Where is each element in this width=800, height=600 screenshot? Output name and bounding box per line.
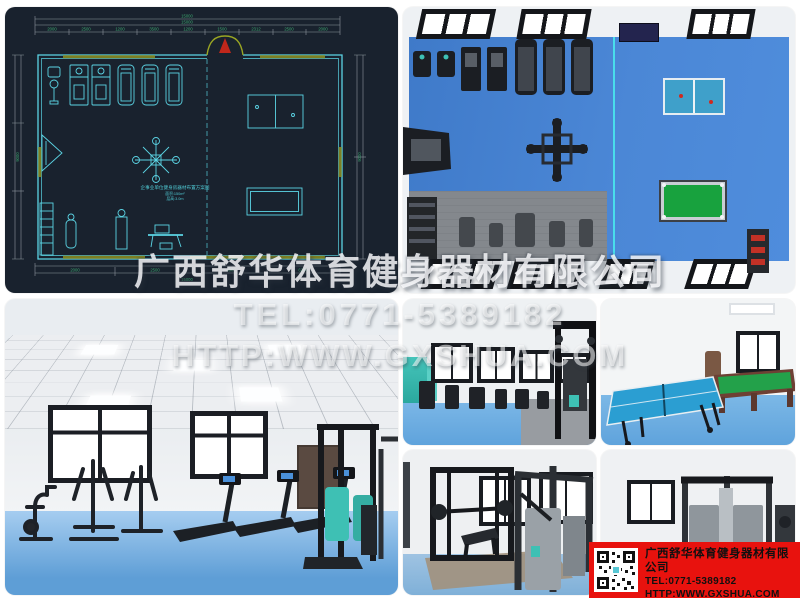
- svg-text:2500: 2500: [81, 27, 91, 32]
- equipment-silhouettes: [403, 7, 795, 293]
- ping-pong-table: [607, 377, 723, 445]
- svg-text:2000: 2000: [318, 27, 328, 32]
- svg-text:2000: 2000: [70, 268, 80, 273]
- svg-text:2000: 2000: [47, 27, 57, 32]
- billiard-table: [714, 369, 795, 413]
- tables: [601, 299, 795, 445]
- equipment-symbols: [40, 65, 303, 255]
- svg-text:15000: 15000: [181, 277, 193, 282]
- cardio-room-photo-panel: [5, 299, 398, 595]
- info-company-name: 广西舒华体育健身器材有限公司: [645, 547, 796, 575]
- table-tennis-billiards-room-panel: [601, 299, 795, 445]
- svg-text:9000: 9000: [15, 152, 20, 162]
- smith-machine: [431, 470, 513, 560]
- svg-text:6200: 6200: [298, 268, 308, 273]
- smith-machine-area-panel: [403, 450, 596, 595]
- svg-text:2500: 2500: [150, 268, 160, 273]
- multi-gym: [515, 466, 593, 592]
- cad-floor-plan-panel: 15000 15000 2000 2500 1200 3500 1200 150…: [5, 7, 398, 293]
- contact-info-box: 广西舒华体育健身器材有限公司 TEL:0771-5389182 HTTP:WWW…: [589, 542, 800, 598]
- double-door: [207, 36, 243, 55]
- svg-text:1200: 1200: [183, 27, 193, 32]
- equipment-silhouettes: [403, 450, 596, 595]
- svg-text:2312: 2312: [251, 27, 261, 32]
- equipment-silhouettes: [5, 299, 398, 595]
- wall-window-accents: [40, 57, 340, 257]
- svg-text:面积:150m²: 面积:150m²: [165, 191, 185, 196]
- svg-text:15000: 15000: [181, 14, 193, 19]
- plan-title-block: 企事业单位健身房器材布置方案图 面积:150m² 层高:3.0m: [141, 184, 210, 201]
- svg-text:1200: 1200: [115, 27, 125, 32]
- svg-text:4300: 4300: [226, 268, 236, 273]
- dimension-labels: 15000 15000 2000 2500 1200 3500 1200 150…: [15, 14, 362, 282]
- svg-text:2500: 2500: [284, 27, 294, 32]
- svg-text:3500: 3500: [149, 27, 159, 32]
- svg-text:层高:3.0m: 层高:3.0m: [166, 196, 183, 201]
- machines-room-photo-panel: [403, 299, 596, 445]
- info-telephone: TEL:0771-5389182: [645, 575, 796, 588]
- svg-text:企事业单位健身房器材布置方案图: 企事业单位健身房器材布置方案图: [141, 184, 210, 191]
- gym-brochure-collage: 15000 15000 2000 2500 1200 3500 1200 150…: [0, 0, 800, 600]
- info-website: HTTP:WWW.GXSHUA.COM: [645, 588, 796, 600]
- svg-text:9000: 9000: [357, 152, 362, 162]
- svg-text:15000: 15000: [181, 20, 193, 25]
- cable-machine: [553, 321, 596, 439]
- top-view-render-panel: [403, 7, 795, 293]
- svg-text:1500: 1500: [217, 27, 227, 32]
- qr-code-icon: [594, 548, 638, 592]
- equipment-silhouettes: [403, 299, 596, 445]
- multi-gym: [303, 427, 398, 569]
